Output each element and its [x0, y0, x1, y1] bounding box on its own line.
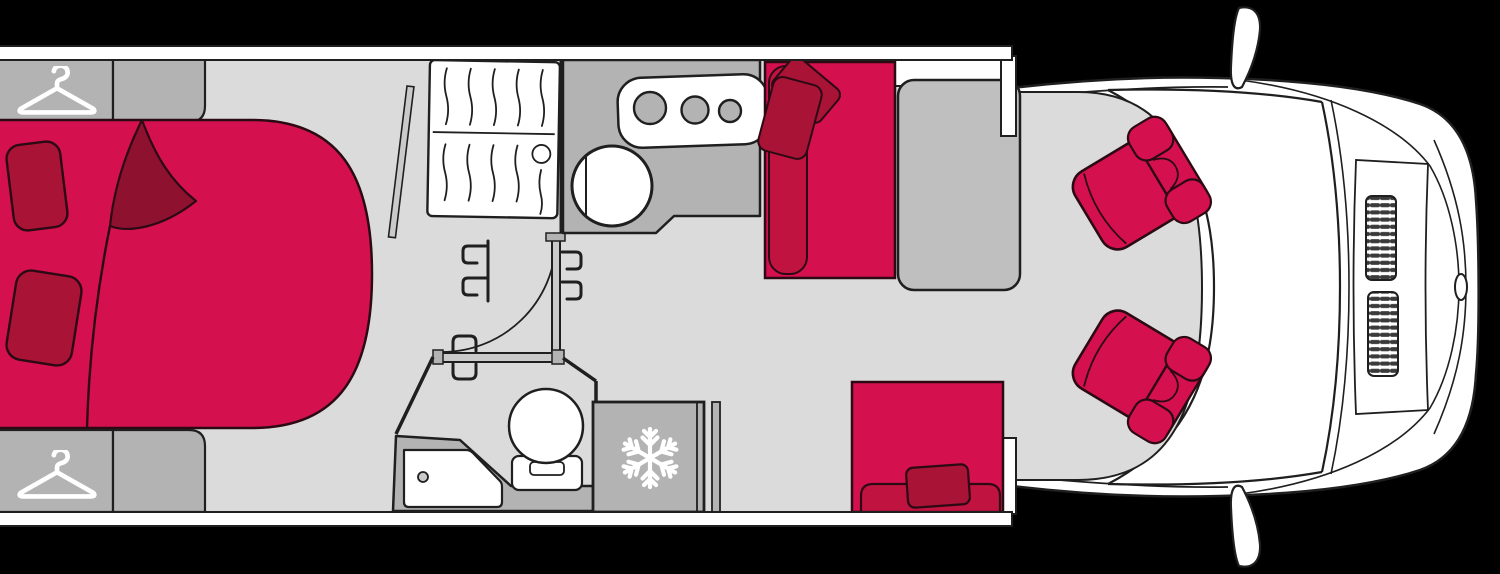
kitchen: [563, 60, 769, 233]
bed-pillow: [5, 140, 69, 232]
floorplan-svg: [0, 0, 1500, 574]
door-leaf-vertical: [552, 238, 560, 360]
badge: [1455, 274, 1467, 300]
grille-vent: [1366, 196, 1396, 280]
floorplan-stage: [0, 0, 1500, 574]
rear-bench: [852, 382, 1003, 512]
hob-burner: [634, 92, 666, 124]
hob-burner: [682, 97, 709, 124]
rear-bench-pillow: [906, 464, 971, 508]
bed-pillow: [4, 268, 83, 367]
door-leaf-horizontal: [440, 353, 556, 362]
fridge: [593, 402, 720, 512]
door-end-cap: [433, 350, 443, 364]
hob-burner: [719, 100, 741, 122]
shower-drain-icon: [418, 472, 428, 482]
door-end-cap: [552, 350, 564, 364]
grille-vent: [1368, 292, 1398, 376]
wall-bottom-overlay: [0, 512, 1012, 526]
toilet: [509, 389, 583, 490]
sink: [572, 146, 652, 226]
door-hinge-cap: [546, 233, 565, 241]
cabinet-bottom: [113, 430, 205, 512]
cabinet-top: [113, 58, 205, 122]
wall-top-overlay: [0, 46, 1012, 60]
wall-pillar: [1001, 56, 1016, 136]
